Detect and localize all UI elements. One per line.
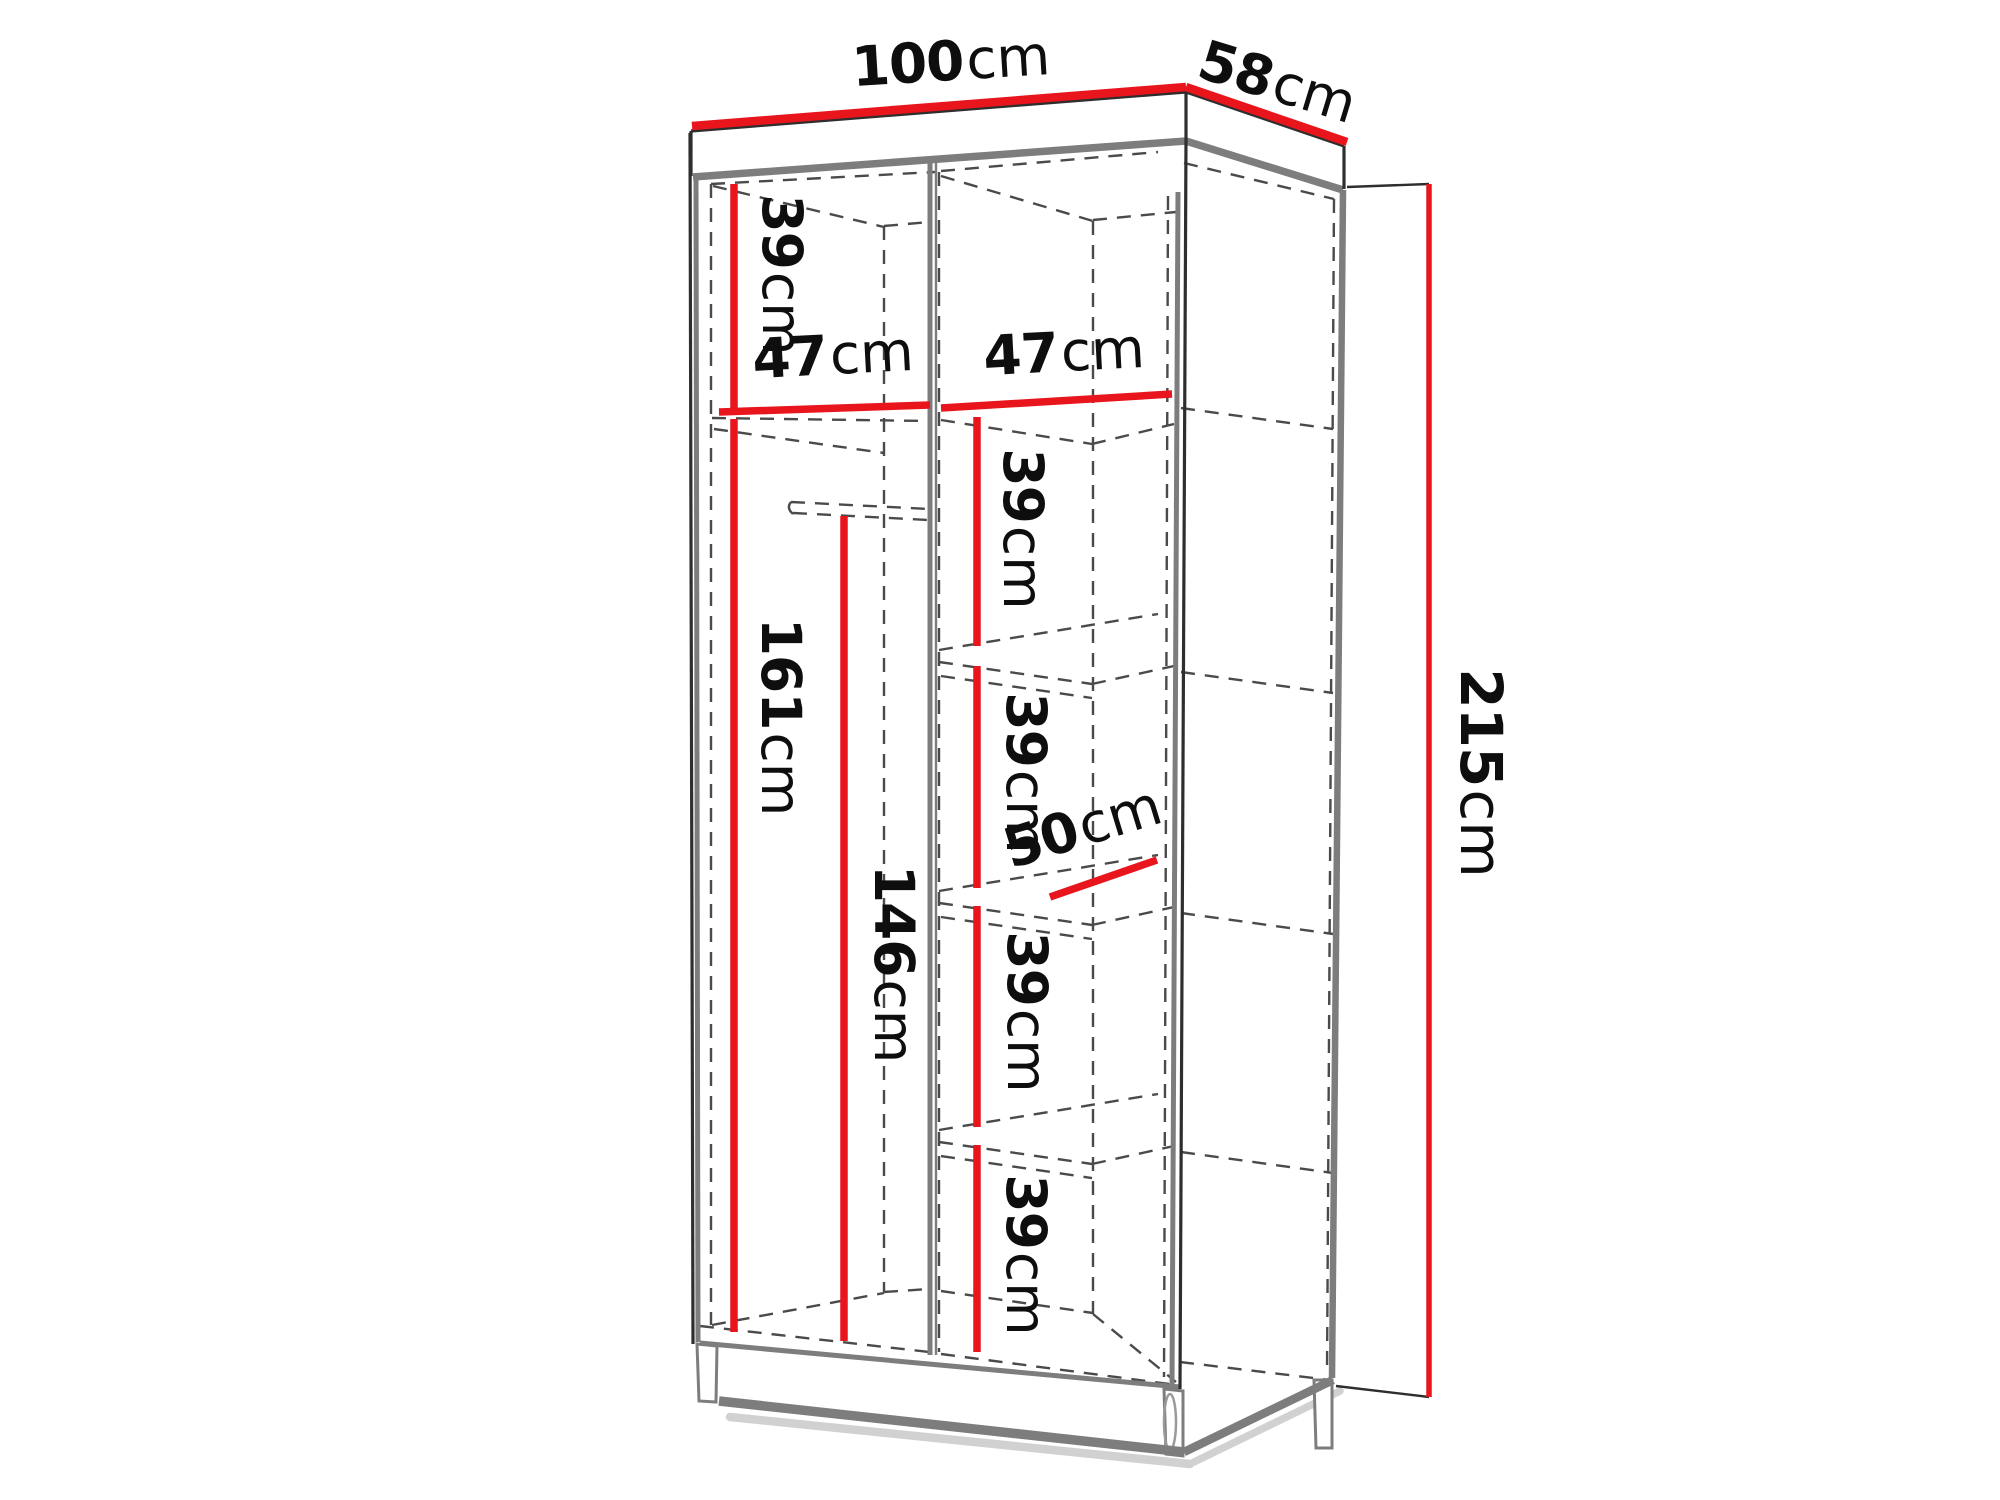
shelf3-join-right bbox=[1092, 907, 1174, 925]
shelf4-label: 39cm bbox=[994, 1174, 1058, 1335]
shelf4-panel-line bbox=[1181, 1152, 1333, 1173]
shelf-depth-dimension-line bbox=[1050, 860, 1157, 897]
hanging-rail-top bbox=[791, 502, 929, 509]
side-panel-bottom-edge bbox=[1184, 1380, 1333, 1452]
left-width-label: 47cm bbox=[751, 319, 916, 391]
floor-panel-line bbox=[1180, 1362, 1330, 1380]
shelf4-back-edge bbox=[939, 1094, 1158, 1130]
shelf3-panel-line bbox=[1181, 913, 1333, 934]
hanging-height-label: 161cm bbox=[749, 618, 813, 817]
floor-shadows bbox=[730, 1391, 1340, 1464]
shelf4-join-right bbox=[1092, 1146, 1174, 1164]
shelf4-front-edge bbox=[939, 1142, 1092, 1164]
ceiling-join-left bbox=[884, 222, 929, 226]
shelf1-label: 39cm bbox=[991, 448, 1055, 609]
top-shelf-front-right bbox=[941, 420, 1092, 444]
top-board-inner-edge bbox=[693, 141, 1343, 190]
shelf3-label: 39cm bbox=[995, 931, 1059, 1092]
shelf3-front-edge bbox=[939, 903, 1092, 925]
diagram-page: { "diagram": { "type": "furniture-dimens… bbox=[0, 0, 2000, 1500]
right-wall-inner-edge bbox=[1172, 192, 1178, 1386]
top-shelf-join-right bbox=[1092, 424, 1174, 444]
ceiling-join-right bbox=[1093, 212, 1176, 220]
ceiling-diagonal-right bbox=[941, 176, 1093, 221]
shelf2-front-edge bbox=[939, 662, 1092, 684]
rail-height-label: 146cm bbox=[862, 865, 926, 1064]
floor-back-left bbox=[712, 1293, 884, 1325]
left-width-dimension-line bbox=[719, 405, 930, 412]
hanging-rail-bottom bbox=[793, 513, 929, 520]
front-left-leg bbox=[697, 1344, 717, 1402]
height-extension-line-top bbox=[1347, 184, 1429, 187]
top-shelf-panel-line bbox=[1181, 408, 1333, 429]
height-extension-line-bottom bbox=[1336, 1386, 1429, 1397]
floor-join-left bbox=[884, 1289, 929, 1292]
wardrobe-dimension-diagram: 100cm 58cm 215cm 39cm 47cm 47cm 161cm 14… bbox=[0, 0, 2000, 1500]
right-wall-inner-line bbox=[1164, 196, 1168, 1377]
dimension-labels: 100cm 58cm 215cm 39cm 47cm 47cm 161cm 14… bbox=[749, 23, 1515, 1336]
left-front-outer-edge bbox=[690, 133, 693, 1344]
width-label: 100cm bbox=[850, 23, 1052, 99]
hanging-rail-end-cap bbox=[789, 502, 793, 514]
top-shelf-front-left bbox=[712, 418, 929, 421]
right-width-dimension-line bbox=[941, 394, 1172, 408]
shelf2-back-edge bbox=[939, 614, 1158, 650]
right-width-label: 47cm bbox=[982, 316, 1147, 388]
shelf2-panel-line bbox=[1181, 672, 1333, 693]
top-shelf-diagonal-left bbox=[714, 429, 884, 453]
right-front-outer-edge bbox=[1180, 140, 1186, 1389]
height-label: 215cm bbox=[1447, 668, 1515, 877]
shelf2-join-right bbox=[1092, 666, 1174, 684]
left-wall-inner-edge bbox=[696, 178, 698, 1342]
